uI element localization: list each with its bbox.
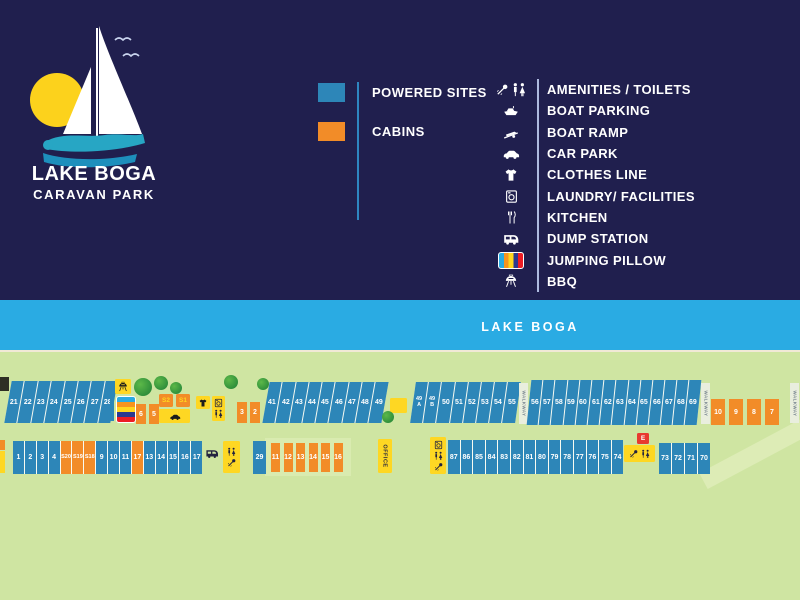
tree [154,376,168,390]
facility-item: KITCHEN [490,207,695,228]
shower-icon [226,458,237,468]
wave-icon [45,134,145,152]
facility-label: CAR PARK [547,146,618,161]
cabin-site: 12 [284,443,293,472]
powered-site: 86 [461,440,473,474]
facility-item: JUMPING PILLOW [490,249,695,270]
tree [170,382,182,394]
cabin-site: 17 [132,441,143,474]
laundry-icon [490,188,532,205]
cabin-site: 16 [334,443,343,472]
powered-sites-swatch [318,83,345,102]
car-park-icon [490,145,532,162]
bbq-icon [117,381,129,393]
dump-station-area [204,446,220,460]
powered-site: 73 [659,443,671,474]
legend-item-powered-sites: POWERED SITES [318,83,487,102]
powered-site: 77 [574,440,586,474]
sites-87-74: 8786858483828180797877767574 [448,440,623,474]
people-icon [511,81,527,99]
facilities-list: AMENITIES / TOILETSBOAT PARKINGBOAT RAMP… [490,79,695,292]
office: OFFICE [378,439,392,473]
powered-site: 13 [144,441,155,474]
cutlery-icon [504,209,519,226]
sail-icon [99,26,142,134]
washer-icon [504,188,519,205]
cabin-site: 13 [296,443,305,472]
logo-title: LAKE BOGA [18,163,170,186]
powered-site: 2 [25,441,36,474]
laundry-area [212,396,225,421]
facility-label: DUMP STATION [547,231,649,246]
powered-site: 83 [498,440,510,474]
tree [382,411,394,423]
sites-1-17: 1234S20S19S1891011171314151617 [13,441,202,474]
amenities-icon [490,81,532,99]
facility-label: BBQ [547,274,577,289]
cabin-site: 3 [237,402,247,423]
facility-label: BOAT PARKING [547,103,650,118]
car-park-area [159,409,190,423]
powered-site: 71 [685,443,697,474]
legend-label: CABINS [372,124,425,139]
powered-site: 3 [37,441,48,474]
cabin-site: 15 [321,443,330,472]
powered-site: 1 [13,441,24,474]
ramp-icon [499,124,523,141]
walk-sliver [110,397,114,421]
powered-site: 4 [49,441,60,474]
facility-item: DUMP STATION [490,228,695,249]
edge-cabin [0,440,5,450]
jumping-pillow-icon [490,252,532,269]
powered-site: 10 [108,441,119,474]
tree [134,378,152,396]
powered-site: 75 [599,440,611,474]
people-icon [640,449,651,459]
powered-site: 16 [179,441,190,474]
facility-item: BOAT RAMP [490,122,695,143]
powered-site: 79 [549,440,561,474]
walkway-strip: WALKWAY [701,383,710,424]
cabins-swatch [318,122,345,141]
lake-label: LAKE BOGA [455,320,605,334]
powered-site: 84 [486,440,498,474]
cabin-site: S20 [61,441,72,474]
rv-icon [500,230,522,247]
powered-site: 80 [536,440,548,474]
site-29: 29 [253,441,266,474]
car-icon [164,411,186,422]
people-icon [226,447,237,457]
people-icon [433,451,444,461]
emergency-site: E [637,433,649,444]
header-panel: LAKE BOGA CARAVAN PARK POWERED SITESCABI… [0,0,800,300]
legend-label: POWERED SITES [372,85,487,100]
boat-ramp-icon [490,124,532,141]
powered-site: 29 [253,441,266,474]
logo-graphic [15,12,235,172]
boat-icon [499,102,523,119]
dump-station-icon [490,230,532,247]
facility-label: BOAT RAMP [547,125,628,140]
edge-facility [0,451,5,473]
washer-icon [433,440,444,450]
cabin-s1: S1 [176,394,190,407]
amenities-area-3 [430,437,446,474]
map-layer: 212223242526272865S2S1324142434445464748… [0,352,800,600]
facility-item: CAR PARK [490,143,695,164]
powered-site: 76 [587,440,599,474]
legend-list: POWERED SITESCABINS [318,83,487,161]
facility-label: CLOTHES LINE [547,167,647,182]
cabin-site: 6 [136,404,146,424]
shower-icon [495,81,509,99]
cabins-6-5: 65 [136,404,159,424]
cabin-site: 10 [711,399,725,425]
sites-73-70: 73727170 [659,443,710,474]
cabin-site: S18 [84,441,95,474]
powered-site: 81 [524,440,536,474]
washer-icon [213,398,224,408]
powered-site: 11 [120,441,131,474]
logo-text: LAKE BOGA CARAVAN PARK [18,163,170,202]
jumping-pillow-icon [498,252,524,269]
bbq-icon [503,273,519,290]
bbq-icon [490,273,532,290]
shower-icon [433,462,444,472]
shirt-icon [503,167,519,183]
powered-site: 9 [96,441,107,474]
rv-icon [204,446,220,460]
facility-item: CLOTHES LINE [490,164,695,185]
powered-site: 74 [612,440,624,474]
powered-site: 70 [698,443,710,474]
powered-site: 85 [473,440,485,474]
powered-site: 14 [156,441,167,474]
powered-site: 87 [448,440,460,474]
sites-49a-55: 49 A49 B505152535455 [410,382,520,423]
cabin-site: 7 [765,399,779,425]
facility-label: AMENITIES / TOILETS [547,82,691,97]
powered-site: 82 [511,440,523,474]
legend-item-cabins: CABINS [318,122,487,141]
facility-item: LAUNDRY/ FACILITIES [490,185,695,206]
lake-boga-caravan-park-map: LAKE BOGA CARAVAN PARK POWERED SITESCABI… [0,0,800,600]
birds-icon [115,38,139,56]
cabins-3-2: 32 [237,402,260,423]
facilities-divider [537,79,539,292]
shirt-icon [198,398,208,408]
amenities-area-1 [390,398,407,413]
jumping-pillow-area [116,396,136,423]
boat-parking-icon [490,102,532,119]
cabin-site: 8 [747,399,761,425]
facility-item: BBQ [490,271,695,292]
powered-site: 17 [191,441,202,474]
sites-41-49: 414243444546474849 [262,382,388,423]
cabin-site: S19 [72,441,83,474]
bbq-area [115,379,131,394]
car-icon [499,145,523,162]
tree [257,378,269,390]
sites-56-69: 5657585960616263646566676869 [527,380,701,425]
facility-item: AMENITIES / TOILETS [490,79,695,100]
facility-item: BOAT PARKING [490,100,695,121]
legend-divider [357,82,359,220]
kitchen-icon [490,209,532,226]
powered-site: 15 [168,441,179,474]
clothes-line-icon [490,167,532,183]
powered-site: 72 [672,443,684,474]
cabin-site: 5 [149,404,159,424]
tree [224,375,238,389]
shower-icon [628,449,639,459]
lake-band [0,300,800,354]
walkway-strip: WALKWAY [790,383,799,423]
people-icon [213,409,224,419]
cabin-s2: S2 [159,394,173,407]
facility-label: KITCHEN [547,210,608,225]
shore-object [0,377,9,391]
amenities-area-4 [624,445,655,462]
powered-site: 78 [561,440,573,474]
cabin-site: 9 [729,399,743,425]
cabin-site: 2 [250,402,260,423]
cabin-site: 11 [271,443,280,472]
facility-label: JUMPING PILLOW [547,253,666,268]
logo-subtitle: CARAVAN PARK [18,187,170,202]
cabin-site: 14 [309,443,318,472]
facility-label: LAUNDRY/ FACILITIES [547,189,695,204]
cabins-10-7: 10987 [711,399,779,425]
sites-21-28: 2122232425262728 [4,381,118,423]
amenities-area-2 [223,441,240,473]
clothes-line-area [196,396,210,409]
cabins-11-16: 111213141516 [271,443,343,472]
